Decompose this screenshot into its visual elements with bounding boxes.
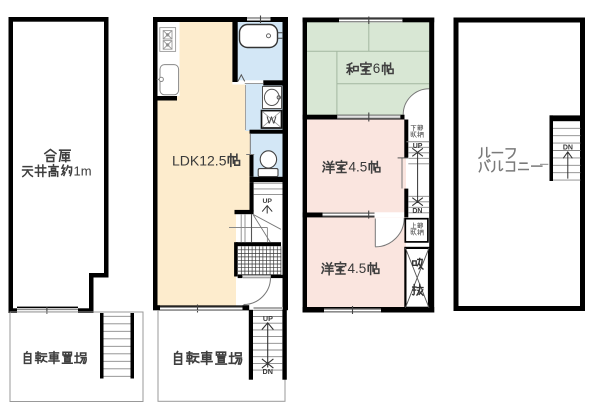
svg-text:4.5: 4.5	[349, 159, 368, 174]
svg-text:UP: UP	[413, 143, 423, 150]
svg-text:UP: UP	[262, 198, 272, 205]
svg-text:LDK12.5: LDK12.5	[172, 153, 227, 169]
svg-text:1m: 1m	[74, 164, 92, 179]
svg-text:6: 6	[373, 61, 381, 76]
svg-text:DN: DN	[412, 208, 422, 215]
svg-text:DN: DN	[563, 145, 573, 152]
svg-text:UP: UP	[263, 314, 273, 323]
svg-text:W: W	[267, 115, 277, 127]
svg-text:4.5: 4.5	[348, 261, 367, 276]
svg-text:DN: DN	[263, 367, 273, 376]
